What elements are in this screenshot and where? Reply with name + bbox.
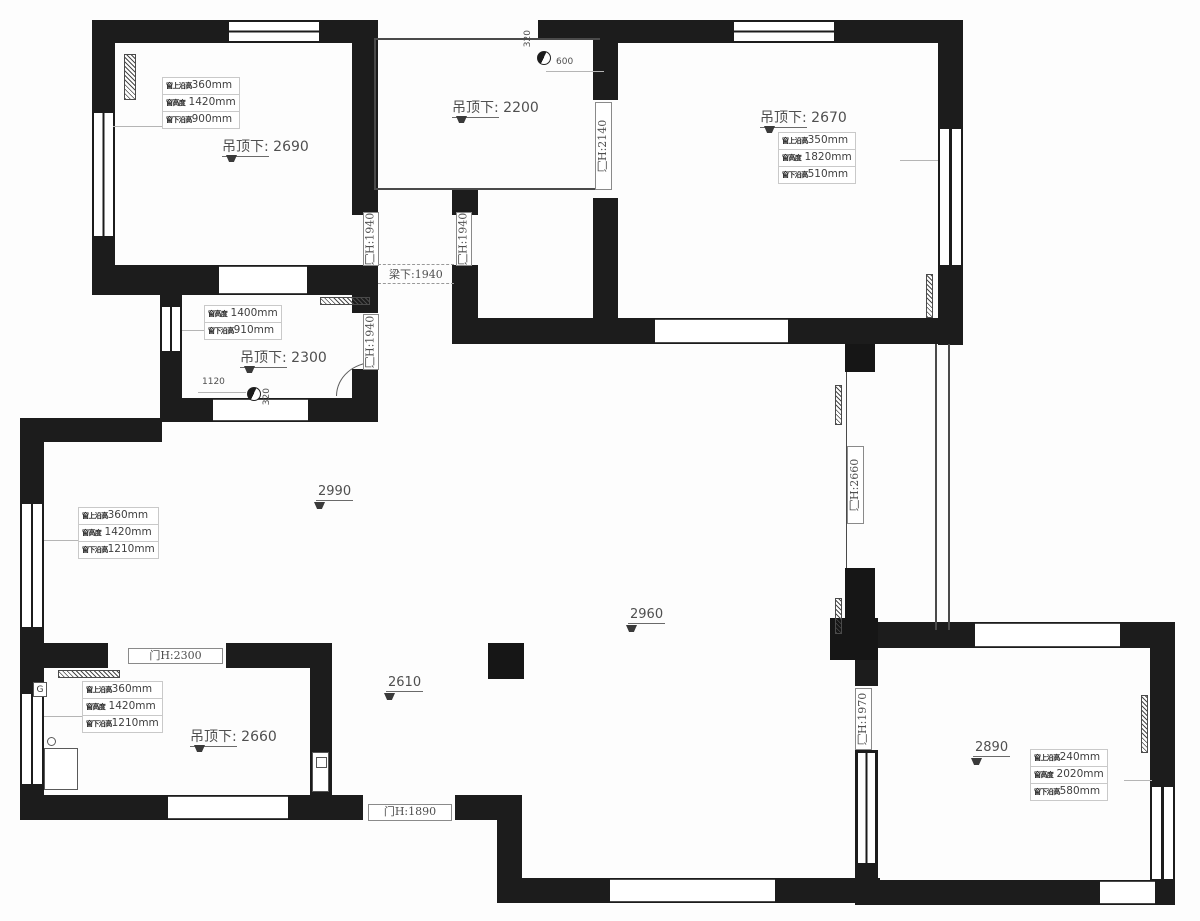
kitchen-sink [44, 748, 78, 790]
annotation-value: 360mm [108, 509, 149, 521]
downlight-icon [314, 502, 325, 509]
downlight-icon [244, 366, 255, 373]
sink-knob [47, 737, 56, 746]
ceiling-label-text: 吊顶下: [222, 139, 269, 157]
annotation-key: 窗上沿高 [86, 686, 112, 694]
annotation-key: 窗上沿高 [82, 512, 108, 520]
annotation-value: 360mm [192, 79, 233, 91]
annotation-key: 窗高度 [166, 99, 185, 107]
ceiling-height-label: 吊顶下: 2660 [190, 726, 277, 746]
dimension-text: 320 [262, 388, 272, 405]
wall-segment [593, 20, 618, 100]
wall-opening [655, 319, 788, 343]
ceiling-label-value: 2300 [291, 350, 327, 366]
wall-opening [975, 623, 1120, 647]
annotation-key: 窗下沿高 [166, 116, 192, 124]
ceiling-label-value: 2670 [811, 110, 847, 126]
downlight-icon [194, 745, 205, 752]
structural-column [845, 344, 875, 372]
partition-line [374, 188, 600, 190]
wall-opening [1100, 881, 1155, 904]
ceiling-label-text: 吊顶下: [760, 110, 807, 128]
annotation-key: 窗高度 [1034, 771, 1053, 779]
partition-line [935, 344, 937, 630]
downlight-icon [226, 155, 237, 162]
door-height-label: 门H:1890 [368, 804, 452, 821]
partition-line [948, 344, 950, 630]
wall-segment [538, 20, 600, 40]
ceiling-label-text: 吊顶下: [240, 350, 287, 368]
downlight-icon [626, 625, 637, 632]
annotation-value: 1820mm [805, 151, 852, 163]
wall-opening [610, 879, 775, 902]
leader-line [198, 392, 246, 393]
downlight-icon [384, 693, 395, 700]
annotation-value: 1420mm [109, 700, 156, 712]
stove-appliance [312, 752, 329, 792]
window [160, 306, 182, 352]
window [938, 128, 963, 266]
door-height-label: 门H:2140 [595, 102, 612, 190]
annotation-key: 窗高度 [86, 703, 105, 711]
radiator-hatch [835, 598, 842, 634]
dimension-text: 1120 [202, 377, 225, 387]
annotation-key: 窗上沿高 [782, 137, 808, 145]
leader-line [44, 540, 78, 541]
leader-line [44, 716, 82, 717]
downlight-symbol [247, 387, 261, 401]
window-annotation: 窗上沿高360mm 窗高度 1420mm 窗下沿高1210mm [82, 682, 163, 733]
ceiling-label-value: 2660 [241, 729, 277, 745]
annotation-value: 580mm [1060, 785, 1101, 797]
leader-line [900, 160, 938, 161]
floor-plan-canvas: G 门H:2140 门H:1940 门H:1940 门H:1940 门H:230… [0, 0, 1200, 921]
annotation-key: 窗高度 [82, 529, 101, 537]
wall-opening [213, 399, 308, 421]
window-annotation: 窗高度 1400mm 窗下沿高910mm [204, 306, 282, 340]
downlight-icon [764, 126, 775, 133]
ceiling-label-text: 吊顶下: [190, 729, 237, 747]
ceiling-label-text: 吊顶下: [452, 100, 499, 118]
wall-opening [219, 266, 307, 294]
structural-column [845, 568, 875, 618]
door-height-label: 门H:1940 [456, 212, 472, 266]
window [92, 112, 115, 237]
annotation-key: 窗下沿高 [782, 171, 808, 179]
radiator-hatch [926, 274, 933, 318]
annotation-value: 350mm [808, 134, 849, 146]
downlight-icon [456, 116, 467, 123]
window-annotation: 窗上沿高360mm 窗高度 1420mm 窗下沿高1210mm [78, 508, 159, 559]
window-annotation: 窗上沿高240mm 窗高度 2020mm 窗下沿高580mm [1030, 750, 1108, 801]
radiator-hatch [835, 385, 842, 425]
annotation-value: 240mm [1060, 751, 1101, 763]
annotation-key: 窗下沿高 [82, 546, 108, 554]
ceiling-label-value: 2200 [503, 100, 539, 116]
window [20, 503, 44, 628]
stove-burner-icon [316, 757, 327, 768]
beam-dashed-line [378, 264, 454, 265]
wall-segment [310, 643, 332, 820]
dimension-text: 320 [523, 30, 533, 47]
ceiling-height-marker: 2960 [628, 607, 665, 624]
window [228, 20, 320, 43]
ceiling-height-label: 吊顶下: 2300 [240, 347, 327, 367]
annotation-value: 1420mm [105, 526, 152, 538]
door-height-label: 门H:1940 [363, 212, 379, 266]
door-height-label: 门H:1940 [363, 314, 379, 370]
window [1150, 786, 1175, 880]
ceiling-height-label: 吊顶下: 2690 [222, 136, 309, 156]
window [20, 693, 44, 785]
ceiling-label-value: 2690 [273, 139, 309, 155]
wall-opening [168, 796, 288, 819]
wall-segment [593, 198, 618, 320]
annotation-value: 2020mm [1057, 768, 1104, 780]
annotation-key: 窗高度 [208, 310, 227, 318]
leader-line [546, 71, 604, 72]
radiator-hatch [124, 54, 136, 100]
annotation-value: 1400mm [231, 307, 278, 319]
beam-height-label: 梁下:1940 [387, 266, 445, 282]
wall-segment [20, 418, 162, 442]
leader-line [113, 126, 162, 127]
ceiling-height-marker: 2610 [386, 675, 423, 692]
window-annotation: 窗上沿高350mm 窗高度 1820mm 窗下沿高510mm [778, 133, 856, 184]
beam-dashed-line [378, 283, 454, 284]
ceiling-height-label: 吊顶下: 2200 [452, 97, 539, 117]
annotation-value: 1210mm [112, 717, 159, 729]
window [856, 752, 877, 864]
door-height-label: 门H:2660 [847, 446, 864, 524]
radiator-hatch [58, 670, 120, 678]
annotation-key: 窗上沿高 [1034, 754, 1060, 762]
annotation-key: 窗上沿高 [166, 82, 192, 90]
ceiling-height-marker: 2890 [973, 740, 1010, 757]
partition-line [374, 38, 376, 190]
radiator-hatch [320, 297, 370, 305]
window-annotation: 窗上沿高360mm 窗高度 1420mm 窗下沿高900mm [162, 78, 240, 129]
annotation-value: 910mm [234, 324, 275, 336]
gas-meter-badge: G [33, 682, 47, 697]
radiator-hatch [1141, 695, 1148, 753]
annotation-value: 1210mm [108, 543, 155, 555]
ceiling-height-marker: 2990 [316, 484, 353, 501]
leader-line [182, 330, 204, 331]
dimension-text: 600 [556, 57, 573, 67]
annotation-value: 1420mm [189, 96, 236, 108]
annotation-key: 窗下沿高 [86, 720, 112, 728]
structural-column [488, 643, 524, 679]
door-height-label: 门H:1970 [855, 688, 872, 750]
ceiling-height-label: 吊顶下: 2670 [760, 107, 847, 127]
annotation-value: 510mm [808, 168, 849, 180]
door-height-label: 门H:2300 [128, 648, 223, 664]
annotation-key: 窗下沿高 [208, 327, 234, 335]
leader-line [1124, 780, 1152, 781]
annotation-key: 窗高度 [782, 154, 801, 162]
partition-line [374, 38, 600, 40]
downlight-symbol [537, 51, 551, 65]
downlight-icon [971, 758, 982, 765]
annotation-value: 360mm [112, 683, 153, 695]
annotation-key: 窗下沿高 [1034, 788, 1060, 796]
annotation-value: 900mm [192, 113, 233, 125]
window [733, 20, 835, 43]
